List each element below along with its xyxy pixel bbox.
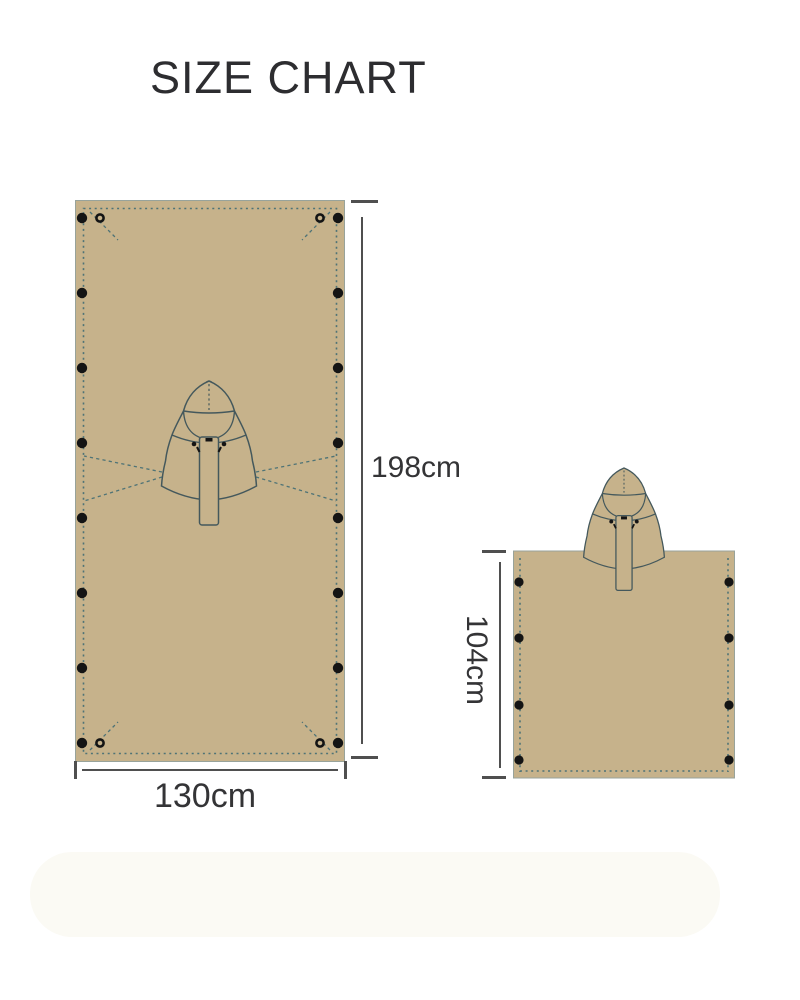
poncho-dim-line	[499, 562, 501, 768]
height-dim-tick-bottom	[351, 756, 378, 759]
poncho-drawing	[513, 460, 735, 780]
height-dim-tick-top	[351, 200, 378, 203]
zipper-placket	[200, 437, 219, 525]
zipper-pull	[206, 438, 213, 442]
poncho-dim-tick-bottom	[482, 776, 506, 779]
poncho-toggle-right	[635, 520, 639, 524]
page-title: SIZE CHART	[150, 52, 427, 104]
poncho-toggle-left	[609, 520, 613, 524]
drawcord-toggle-left	[192, 442, 197, 447]
flat-tarp-drawing	[75, 200, 345, 762]
width-dim-tick-left	[74, 761, 77, 779]
height-dim-label: 198cm	[371, 452, 461, 484]
size-chart-page: SIZE CHART	[0, 0, 800, 1000]
flat-tarp-diagram	[75, 200, 345, 762]
poncho-dim-tick-top	[482, 550, 506, 553]
drawcord-toggle-right	[222, 442, 227, 447]
height-dim-line	[361, 217, 363, 744]
width-dim-line	[82, 769, 338, 771]
width-dim-tick-right	[344, 761, 347, 779]
poncho-zipper-pull	[621, 516, 627, 519]
poncho-zipper-placket	[616, 516, 632, 591]
poncho-diagram	[513, 460, 735, 780]
faint-background-band	[30, 852, 720, 937]
poncho-dim-label: 104cm	[460, 614, 492, 706]
width-dim-label: 130cm	[145, 779, 265, 815]
